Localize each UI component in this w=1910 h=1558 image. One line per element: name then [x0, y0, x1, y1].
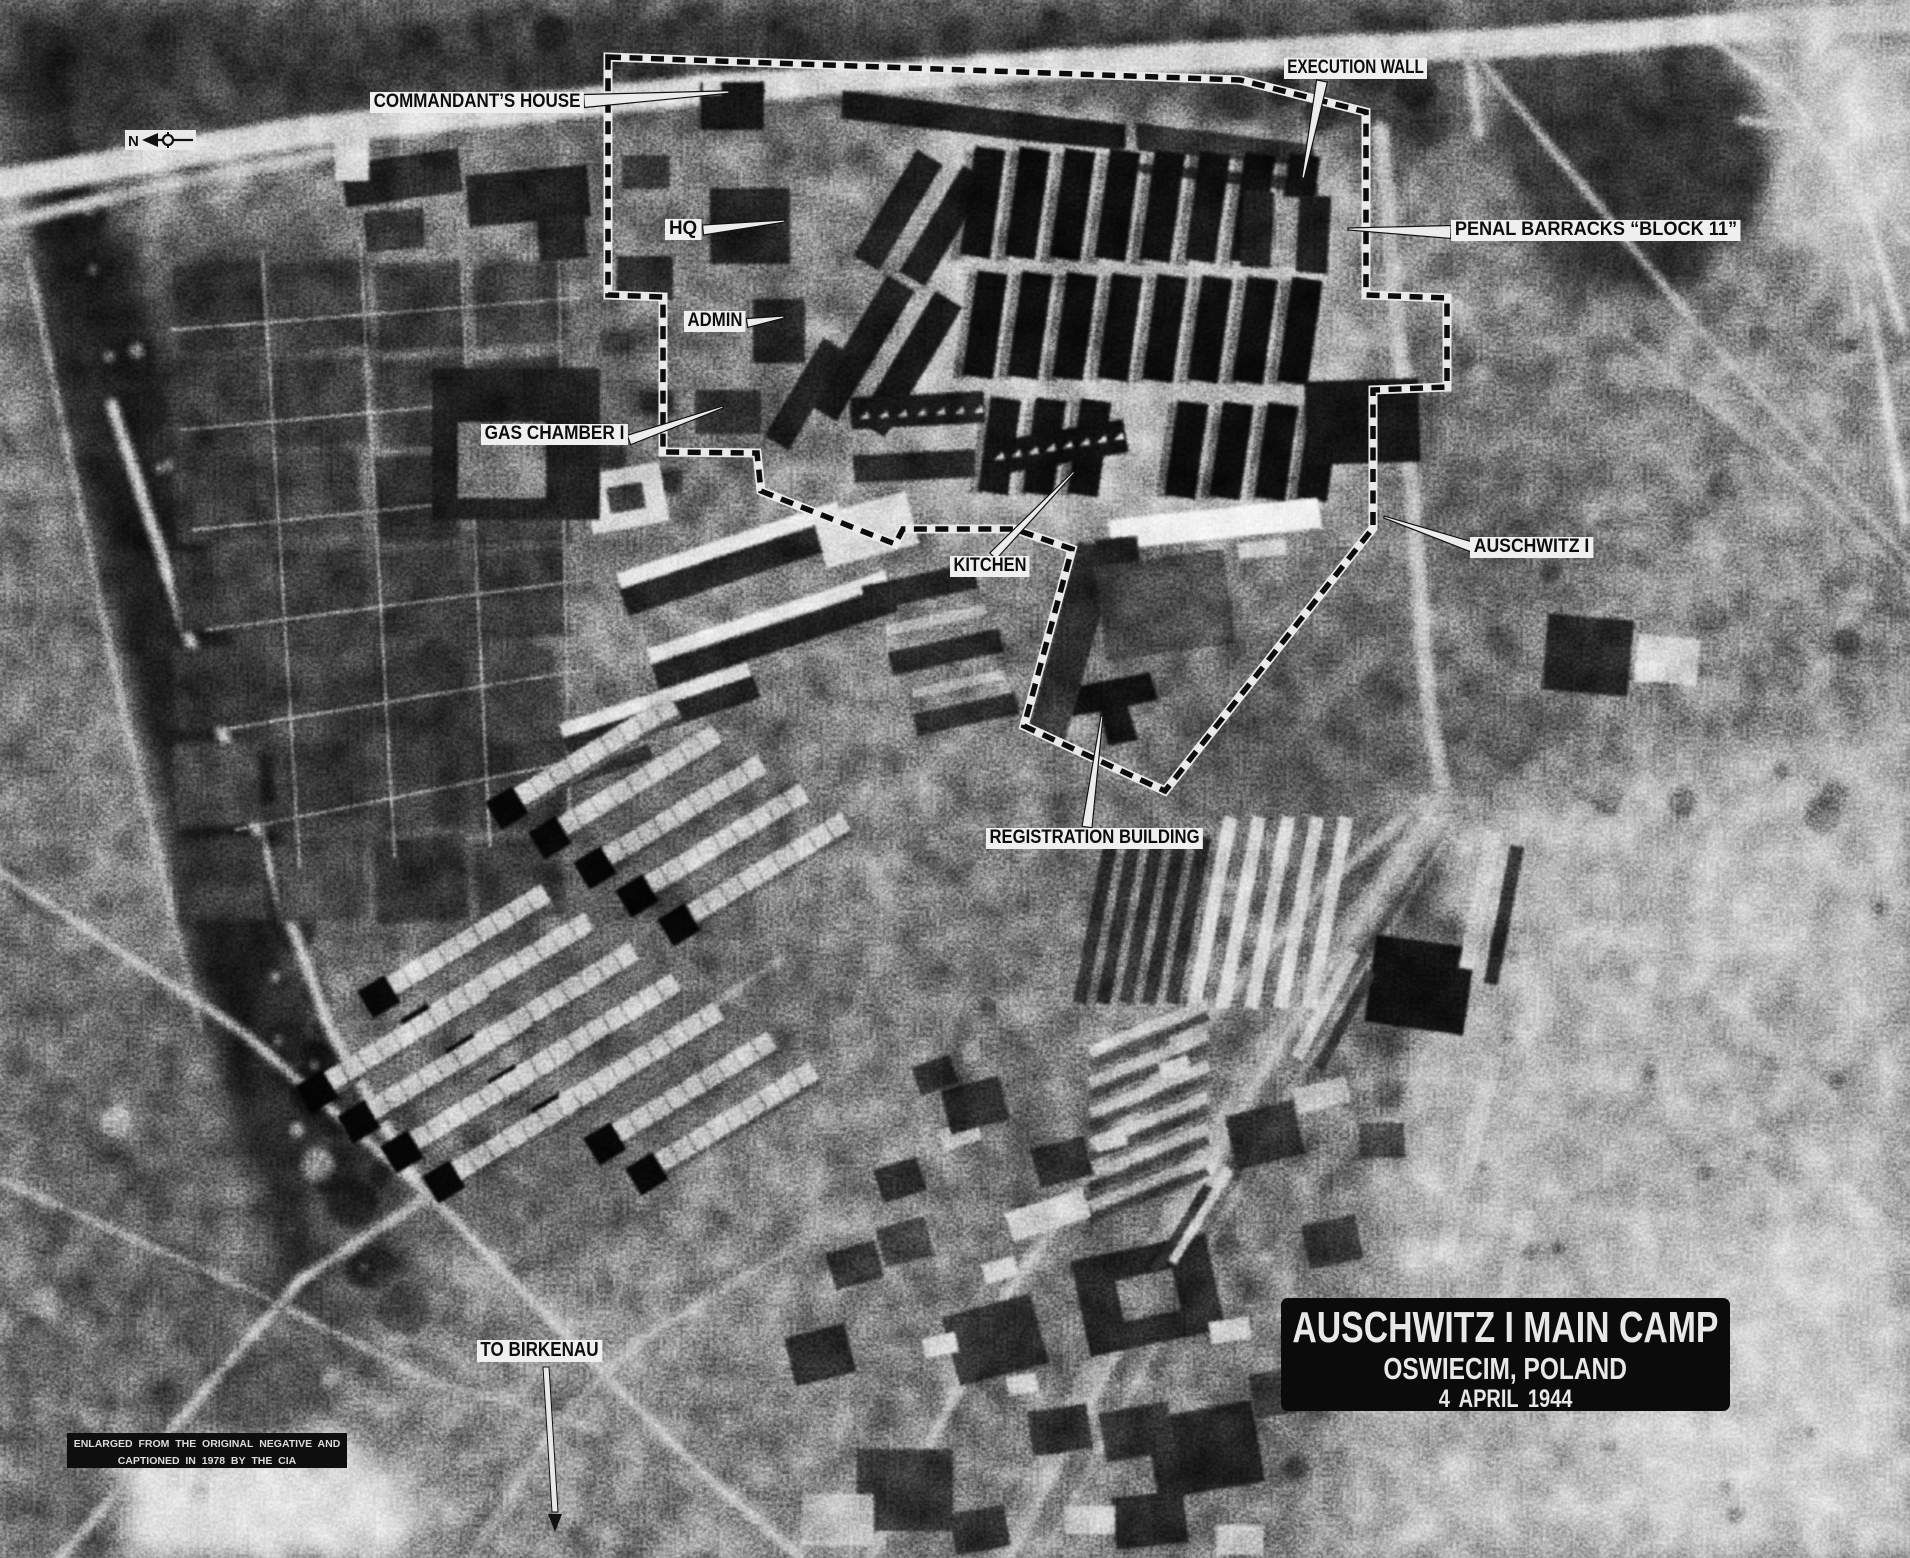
svg-text:N: N — [128, 133, 139, 150]
